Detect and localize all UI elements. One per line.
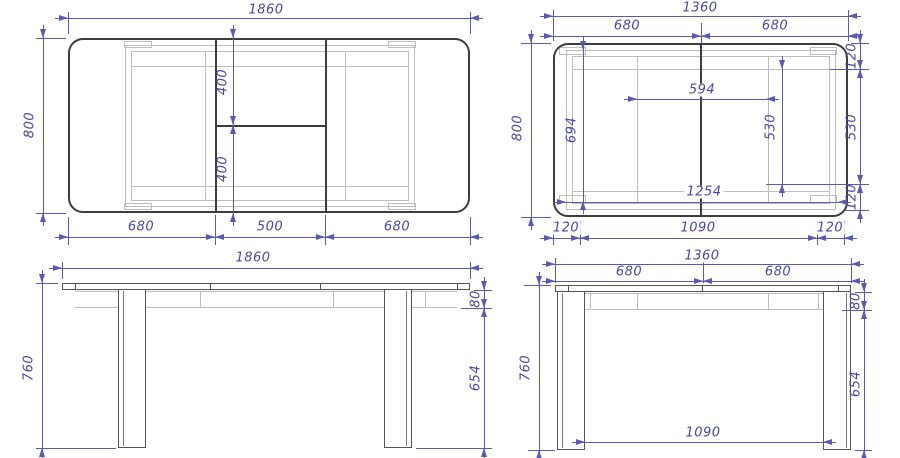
dim-label-v3-height: 760: [23, 355, 36, 381]
dimension-arrow: [571, 235, 580, 241]
extension-line: [521, 43, 551, 44]
drawing-canvas: 1860800680500680400400136068068080059469…: [0, 0, 900, 458]
dimension-arrow: [40, 29, 46, 38]
dimension-arrow: [766, 96, 775, 102]
dimension-arrow: [576, 439, 585, 445]
dimension-line-v1-depth: [43, 25, 44, 226]
extension-line: [524, 285, 551, 286]
hidden-frame-line: [818, 293, 819, 309]
dim-label-v2-depth: 800: [512, 115, 525, 141]
dimension-arrow: [528, 34, 534, 43]
dimension-arrow: [557, 199, 566, 205]
dimension-arrow: [544, 13, 553, 19]
slab-seam-line: [320, 283, 321, 290]
dimension-line-v2-frame-depth: [583, 37, 584, 214]
dimension-arrow: [857, 175, 863, 184]
dimension-arrow: [39, 274, 45, 283]
dimension-arrow: [470, 234, 479, 240]
dimension-line-v3-width: [49, 268, 483, 269]
hidden-frame-line: [590, 293, 591, 309]
dimension-arrow: [546, 278, 555, 284]
dim-label-v1-depth: 800: [24, 112, 37, 138]
dim-label-v1-leaf-right: 680: [382, 221, 412, 234]
dimension-arrow: [481, 299, 487, 308]
dimension-arrow: [694, 278, 703, 284]
dim-label-v2-frame-depth: 694: [566, 117, 579, 143]
dimension-line-v2-depth: [531, 30, 532, 230]
dimension-arrow: [861, 450, 867, 458]
dim-label-v1-leaf-left: 680: [126, 221, 156, 234]
dimension-arrow: [823, 439, 832, 445]
dim-label-v2-side-rail: 530: [846, 114, 859, 140]
dim-label-v4-clearance: 654: [850, 371, 863, 397]
dim-label-v2-rail-span: 594: [687, 84, 717, 97]
dim-label-v4-height: 760: [520, 355, 533, 381]
dim-label-v2-half-left: 680: [612, 20, 642, 33]
dimension-arrow: [857, 60, 863, 69]
extension-line: [36, 38, 66, 39]
dim-label-v2-leg-span: 1090: [678, 222, 717, 235]
dim-label-v1-insert: 500: [255, 221, 285, 234]
slab-seam-line: [702, 285, 703, 292]
dimension-line-v3-height: [42, 270, 43, 458]
leg-edge-line: [406, 291, 407, 446]
dimension-line-v4-width: [542, 264, 864, 265]
dimension-line-v4-half-right: [690, 281, 864, 282]
dim-label-v2-front-inset-left: 120: [551, 222, 581, 235]
dimension-arrow: [851, 261, 860, 267]
dimension-arrow: [851, 278, 860, 284]
leg-edge-line: [846, 293, 847, 448]
slab-seam-line: [75, 283, 76, 290]
dim-label-v1-insert-front: 400: [217, 156, 230, 182]
dimension-line-v2-width: [540, 16, 861, 17]
dim-label-v4-half-left: 680: [614, 266, 644, 279]
dim-label-v2-side-inset-bottom: 120: [846, 184, 859, 210]
dimension-arrow: [857, 210, 863, 219]
dimension-arrow: [53, 265, 62, 271]
dimension-arrow: [580, 41, 586, 50]
dim-label-v2-width: 1360: [680, 2, 719, 15]
dimension-arrow: [59, 234, 68, 240]
dimension-line-v2-rail-span: [624, 99, 779, 100]
dimension-arrow: [861, 283, 867, 292]
dim-label-v3-clearance: 654: [470, 365, 483, 391]
dimension-line-v1-leaf-right: [312, 237, 483, 238]
dim-label-v4-leg-span: 1090: [683, 427, 722, 440]
extension-line: [36, 448, 116, 449]
dimension-arrow: [692, 33, 701, 39]
dim-label-v2-half-right: 680: [760, 20, 790, 33]
dimension-line-v1-insert-front: [233, 112, 234, 226]
extension-line: [36, 283, 58, 284]
dimension-arrow: [844, 235, 853, 241]
leg-edge-line: [123, 291, 124, 446]
dimension-arrow: [536, 276, 542, 285]
extension-line: [842, 310, 872, 311]
hidden-frame-line: [568, 309, 838, 310]
view-side-extended: [20, 250, 500, 458]
extension-line: [521, 217, 551, 218]
dimension-arrow: [206, 234, 215, 240]
leg-edge-line: [562, 293, 563, 448]
dimension-line-v2-frame-length: [553, 202, 851, 203]
dimension-arrow: [470, 15, 479, 21]
hidden-frame-line: [637, 293, 638, 309]
dimension-arrow: [528, 217, 534, 226]
hidden-frame-line: [425, 291, 426, 307]
dimension-arrow: [544, 33, 553, 39]
dimension-arrow: [481, 448, 487, 457]
dimension-arrow: [808, 235, 817, 241]
dim-label-v2-frame-length: 1254: [684, 186, 723, 199]
extension-line: [68, 12, 69, 34]
table-leg: [384, 289, 412, 448]
dimension-arrow: [230, 213, 236, 222]
dimension-arrow: [470, 265, 479, 271]
dim-label-v2-front-inset-right: 120: [815, 222, 845, 235]
dimension-arrow: [316, 234, 325, 240]
dimension-arrow: [779, 60, 785, 69]
dimension-arrow: [59, 15, 68, 21]
dim-label-v4-width: 1360: [682, 250, 721, 263]
dimension-line-v2-half-right: [688, 36, 861, 37]
dimension-line-v4-clearance: [864, 297, 865, 458]
dimension-arrow: [230, 116, 236, 125]
dimension-arrow: [838, 199, 847, 205]
dimension-arrow: [546, 261, 555, 267]
hidden-frame-line: [568, 293, 838, 294]
dimension-arrow: [779, 184, 785, 193]
hidden-frame-line: [768, 293, 769, 309]
dimension-arrow: [481, 281, 487, 290]
dim-label-v4-half-right: 680: [763, 266, 793, 279]
dimension-arrow: [857, 34, 863, 43]
extension-line: [461, 308, 492, 309]
dimension-arrow: [628, 96, 637, 102]
dimension-arrow: [544, 235, 553, 241]
dimension-line-v2-rail-depth: [782, 56, 783, 197]
dimension-line-v1-width: [55, 18, 483, 19]
dim-label-v3-width: 1860: [233, 252, 272, 265]
dimension-arrow: [848, 33, 857, 39]
extension-line: [325, 215, 326, 245]
dim-label-v1-width: 1860: [246, 4, 285, 17]
dimension-arrow: [230, 29, 236, 38]
dimension-arrow: [536, 450, 542, 458]
extension-line: [470, 217, 471, 245]
slab-seam-line: [210, 283, 211, 290]
dimension-line-v2-leg-span: [567, 238, 830, 239]
extension-line: [68, 217, 69, 245]
hidden-frame-line: [200, 291, 201, 307]
slab-seam-line: [457, 283, 458, 290]
insert-seam-line: [325, 38, 327, 213]
extension-line: [62, 262, 63, 279]
dimension-line-v4-leg-span: [572, 442, 836, 443]
dim-label-v1-insert-back: 400: [217, 69, 230, 95]
dimension-arrow: [40, 213, 46, 222]
extension-line: [215, 215, 216, 245]
dimension-arrow: [861, 301, 867, 310]
extension-line: [555, 258, 556, 283]
dimension-arrow: [848, 13, 857, 19]
dimension-line-v3-clearance: [484, 295, 485, 458]
dim-label-v2-rail-depth: 530: [765, 114, 778, 140]
dimension-line-v4-height: [539, 272, 540, 458]
hidden-frame-line: [333, 291, 334, 307]
tabletop-slab-compact: [555, 285, 851, 292]
dimension-arrow: [39, 448, 45, 457]
